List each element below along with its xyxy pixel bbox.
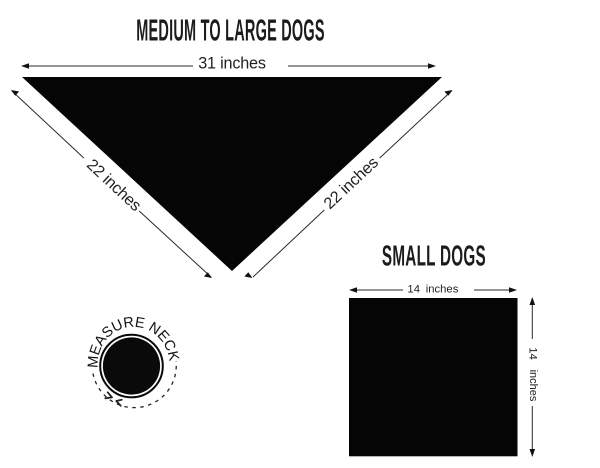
svg-text:inches: inches xyxy=(527,370,539,402)
svg-text:SMALL DOGS: SMALL DOGS xyxy=(382,239,486,272)
svg-text:31 inches: 31 inches xyxy=(198,55,266,73)
svg-text:14: 14 xyxy=(407,284,420,296)
svg-text:inches: inches xyxy=(426,284,459,296)
svg-text:14: 14 xyxy=(527,347,539,360)
svg-text:MEDIUM TO LARGE DOGS: MEDIUM TO LARGE DOGS xyxy=(136,13,325,48)
